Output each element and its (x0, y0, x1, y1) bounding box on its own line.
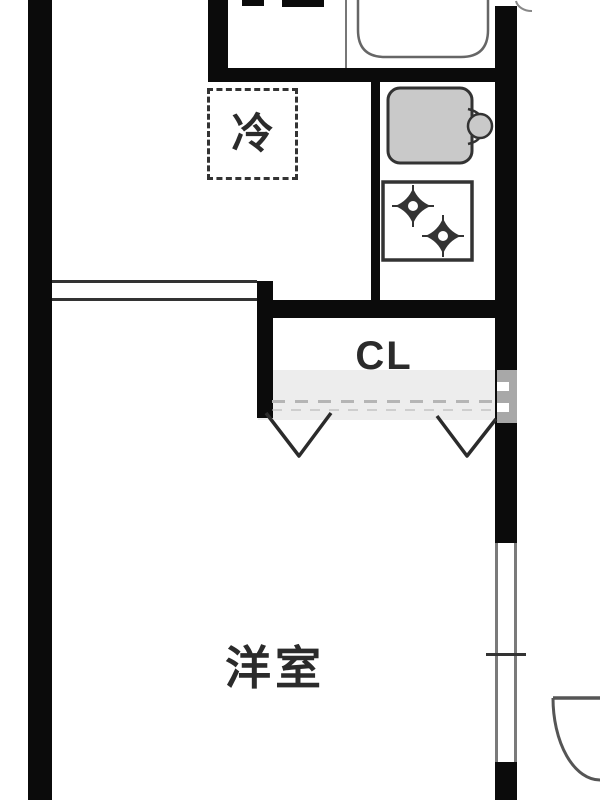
right-outer-wall-lower (495, 762, 517, 800)
closet-area: CL (272, 316, 496, 396)
clipped-corner-arc (516, 1, 532, 11)
stove-outline (383, 182, 472, 260)
sink-faucet-mount (468, 109, 480, 144)
western-room-label: 洋室 (225, 645, 325, 691)
watermark-letter-notch (497, 382, 509, 391)
kitchen-divider-wall (371, 82, 380, 303)
room-opening-line-lower (52, 298, 257, 301)
clipped-label-mark (282, 0, 324, 7)
watermark-letter (497, 370, 517, 423)
clipped-label-mark (242, 0, 264, 6)
stove-burner-icon (422, 215, 464, 257)
left-outer-wall (28, 0, 52, 800)
refrigerator-space-box: 冷 (207, 88, 298, 180)
bathroom-partition-line (345, 0, 347, 68)
kitchen-sink-icon (388, 88, 472, 163)
refrigerator-label: 冷 (231, 113, 273, 155)
washbasin-icon (358, 0, 488, 57)
watermark-letter-notch (497, 403, 509, 412)
window-mullion-tick (486, 653, 526, 656)
sink-faucet-icon (468, 114, 492, 138)
closet-left-wall (257, 281, 273, 418)
folding-door-icon (437, 416, 496, 456)
western-room-area: 洋室 (165, 638, 385, 698)
door-swing-arc (553, 698, 600, 780)
closet-track-dashed-line (272, 400, 496, 403)
stove-burner-icon (392, 185, 434, 227)
closet-label: CL (355, 336, 412, 376)
right-outer-wall-upper (495, 6, 517, 543)
bathroom-bottom-wall (208, 68, 517, 82)
room-opening-line-upper (52, 280, 257, 283)
floorplan-canvas: 冷 CL 洋室 (0, 0, 600, 800)
closet-track-dashed-line-2 (272, 409, 496, 411)
